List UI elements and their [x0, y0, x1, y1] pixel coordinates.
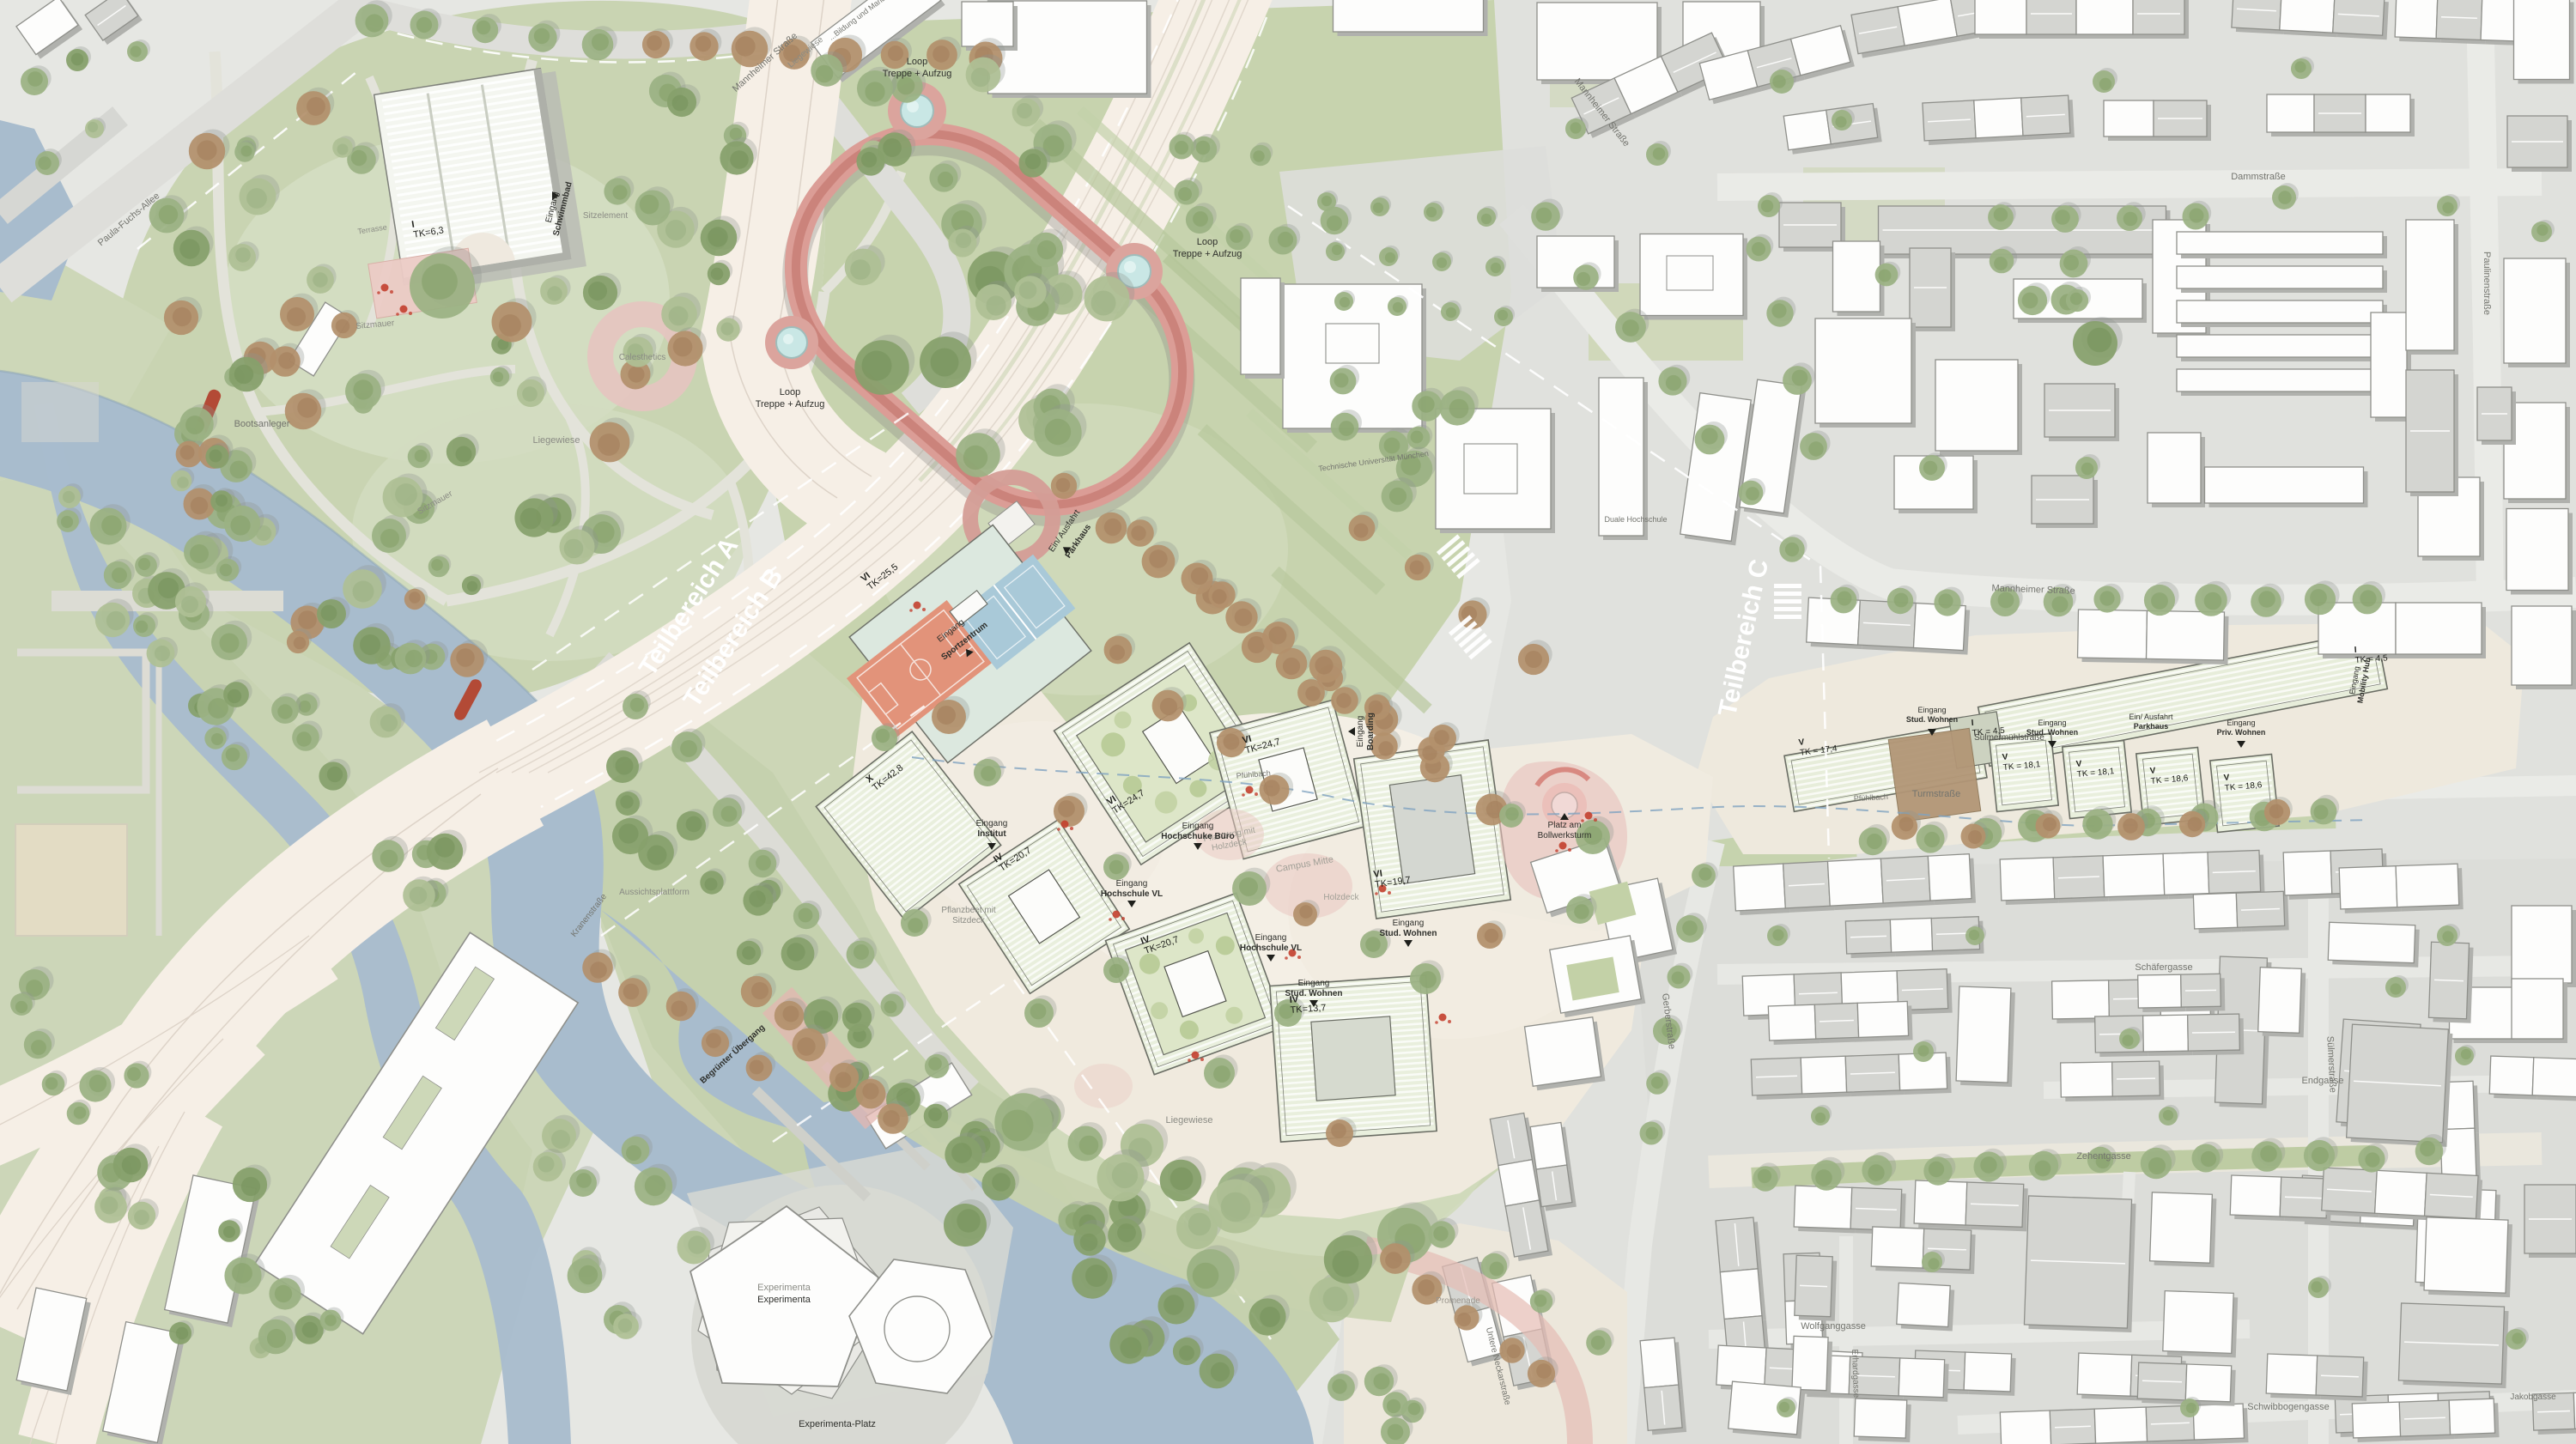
- svg-text:Treppe + Aufzug: Treppe + Aufzug: [883, 69, 952, 79]
- svg-text:Liegewiese: Liegewiese: [532, 435, 580, 446]
- svg-text:Pfühlbach: Pfühlbach: [1854, 792, 1888, 803]
- svg-text:Treppe + Aufzug: Treppe + Aufzug: [756, 399, 825, 410]
- svg-text:Loop: Loop: [1197, 237, 1218, 247]
- svg-text:Boarding: Boarding: [1366, 713, 1376, 750]
- svg-text:Loop: Loop: [907, 57, 927, 67]
- svg-text:Duale Hochschule: Duale Hochschule: [1604, 515, 1667, 524]
- svg-text:Eingang: Eingang: [1298, 979, 1330, 988]
- svg-text:Eingang: Eingang: [2227, 719, 2255, 727]
- svg-text:Erhardgasse: Erhardgasse: [1850, 1349, 1861, 1398]
- svg-text:Loop: Loop: [780, 387, 800, 397]
- svg-text:Platz am: Platz am: [1548, 821, 1582, 830]
- svg-text:Aussichtsplattform: Aussichtsplattform: [619, 888, 690, 897]
- svg-text:Stud. Wohnen: Stud. Wohnen: [1379, 929, 1437, 938]
- svg-text:Paulinenstraße: Paulinenstraße: [2482, 252, 2492, 315]
- svg-text:V: V: [2002, 752, 2008, 762]
- svg-text:Pflanzbeet mit: Pflanzbeet mit: [941, 906, 996, 915]
- svg-text:Institut: Institut: [977, 829, 1006, 839]
- svg-text:Stud. Wohnen: Stud. Wohnen: [2026, 728, 2078, 737]
- svg-text:Hochschuke Büro: Hochschuke Büro: [1161, 832, 1235, 841]
- svg-text:Wolfganggasse: Wolfganggasse: [1801, 1321, 1866, 1332]
- svg-text:Sitzdeck: Sitzdeck: [952, 916, 986, 925]
- svg-text:Sitzelement: Sitzelement: [583, 211, 628, 221]
- svg-text:Bootsanleger: Bootsanleger: [234, 419, 290, 429]
- svg-text:Hochschule VL: Hochschule VL: [1101, 889, 1163, 899]
- svg-text:Eingang: Eingang: [2038, 719, 2066, 727]
- svg-text:Schwibbogengasse: Schwibbogengasse: [2247, 1402, 2329, 1412]
- svg-text:Schäfergasse: Schäfergasse: [2135, 962, 2192, 973]
- svg-text:Eingang: Eingang: [1116, 879, 1148, 889]
- svg-text:Stud. Wohnen: Stud. Wohnen: [1906, 715, 1958, 724]
- svg-text:Liegewiese: Liegewiese: [1165, 1115, 1212, 1125]
- svg-text:Turmstraße: Turmstraße: [1912, 789, 1960, 799]
- svg-text:Eingang: Eingang: [1393, 919, 1425, 928]
- svg-text:Experimenta-Platz: Experimenta-Platz: [799, 1419, 876, 1429]
- svg-text:Experimenta: Experimenta: [757, 1283, 811, 1293]
- svg-text:Calesthetics: Calesthetics: [619, 353, 665, 362]
- svg-text:Eingang: Eingang: [1255, 933, 1287, 943]
- svg-text:Eingang: Eingang: [976, 819, 1008, 828]
- svg-text:Holzdeck: Holzdeck: [1323, 893, 1359, 902]
- svg-text:Zehentgasse: Zehentgasse: [2076, 1151, 2131, 1162]
- svg-text:Jakobgasse: Jakobgasse: [2510, 1392, 2556, 1402]
- svg-text:V: V: [2149, 766, 2156, 776]
- svg-text:V: V: [2223, 773, 2230, 783]
- svg-text:IV: IV: [1289, 994, 1299, 1005]
- svg-text:Priv. Wohnen: Priv. Wohnen: [2217, 728, 2266, 737]
- svg-text:Treppe + Aufzug: Treppe + Aufzug: [1173, 249, 1242, 259]
- svg-text:Bollwerksturm: Bollwerksturm: [1538, 831, 1592, 840]
- svg-text:Parkhaus: Parkhaus: [2134, 722, 2169, 731]
- svg-text:Experimenta: Experimenta: [757, 1295, 811, 1305]
- svg-text:Dammstraße: Dammstraße: [2231, 172, 2286, 182]
- svg-text:Eingang: Eingang: [1917, 706, 1946, 714]
- svg-text:V: V: [2075, 759, 2082, 769]
- svg-text:Hochschule VL: Hochschule VL: [1240, 943, 1302, 953]
- svg-text:Eingang: Eingang: [1182, 822, 1214, 831]
- svg-text:Eingang: Eingang: [1356, 716, 1365, 748]
- svg-text:Promenade: Promenade: [1436, 1296, 1480, 1306]
- svg-text:Ein/ Ausfahrt: Ein/ Ausfahrt: [2129, 713, 2173, 721]
